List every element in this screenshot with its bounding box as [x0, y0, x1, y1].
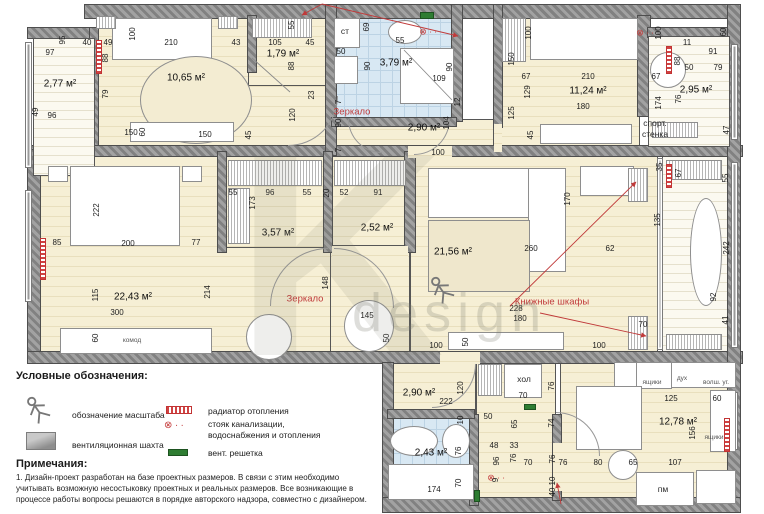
dimension-label: 76: [455, 447, 463, 456]
dimension-label: 210: [164, 39, 177, 47]
wall-segment: [28, 146, 742, 156]
text-label: ящики: [643, 380, 662, 387]
room-area-label: 2,90 м²: [408, 123, 440, 134]
dimension-label: 45: [306, 39, 315, 47]
dimension-label: 23: [308, 91, 316, 100]
dimension-label: 35: [656, 163, 664, 172]
room-area-label: 2,77 м²: [44, 79, 76, 90]
room-area-label: 2,43 м²: [415, 448, 447, 459]
sport-wall-cabinet: [540, 124, 632, 144]
desk: [580, 166, 634, 196]
dimension-label: 11: [683, 39, 691, 47]
notes: Примечания: 1. Дизайн-проект разработан …: [16, 458, 394, 505]
dimension-label: 148: [322, 276, 330, 289]
dimension-label: 90: [364, 62, 372, 71]
dimension-label: 91: [709, 48, 718, 56]
wall-segment: [494, 5, 502, 127]
riser-icon: ⊗ ∙ ∙: [164, 421, 184, 431]
wall-segment: [218, 152, 226, 252]
text-label: Книжные шкафы: [515, 297, 589, 307]
dimension-label: 55: [303, 189, 312, 197]
room-area-label: 3,79 м²: [380, 58, 412, 69]
dimension-label: 7: [335, 148, 343, 152]
nightstand: [48, 166, 68, 182]
room-area-label: 3,57 м²: [262, 228, 294, 239]
bed: [112, 18, 212, 60]
dimension-label: 50: [462, 338, 470, 347]
dimension-label: 180: [576, 103, 589, 111]
shelf: [218, 16, 238, 29]
dimension-label: 65: [629, 459, 638, 467]
dimension-label: 79: [102, 90, 110, 99]
dimension-label: 55: [229, 189, 238, 197]
riser-icon: ⊗ ∙ ∙: [636, 29, 654, 38]
notes-text: 1. Дизайн-проект разработан на базе прое…: [16, 473, 394, 505]
floor-plan-page: 22,43 м²10,65 м²1,79 м²3,79 м²2,90 м²11,…: [0, 0, 764, 514]
dimension-label: 60: [92, 334, 100, 343]
dimension-label: 50: [337, 48, 346, 56]
dimension-label: 60: [713, 395, 722, 403]
vent-grille-icon: [168, 449, 188, 456]
room-area-label: 21,56 м²: [434, 247, 472, 258]
dimension-label: 43: [232, 39, 241, 47]
text-label: Зеркало: [334, 107, 371, 117]
window: [25, 190, 32, 302]
dimension-label: 105: [268, 39, 281, 47]
bookcase: [628, 168, 648, 202]
dimension-label: 76: [559, 459, 568, 467]
dimension-label: 300: [110, 309, 123, 317]
dimension-label: 100: [429, 342, 442, 350]
dimension-label: 95: [59, 36, 67, 45]
sofa-chaise: [528, 168, 566, 272]
dimension-label: 60: [720, 28, 728, 37]
dimension-label: 88: [102, 54, 110, 63]
dimension-label: 100: [592, 342, 605, 350]
dimension-label: 91: [374, 189, 383, 197]
dimension-label: 222: [439, 398, 452, 406]
dimension-label: 174: [427, 486, 440, 494]
dimension-label: 96: [266, 189, 275, 197]
dimension-label: 170: [564, 192, 572, 205]
dimension-label: 150: [508, 52, 516, 65]
text-label: пм: [658, 485, 668, 494]
vent-grille-icon: [524, 404, 536, 410]
text-label: стенка: [642, 130, 668, 139]
dimension-label: 100: [525, 26, 533, 39]
dimension-label: 156: [689, 426, 697, 439]
dimension-label: 107: [668, 459, 681, 467]
room-area-label: 11,24 м²: [569, 86, 606, 97]
dimension-label: 125: [664, 395, 677, 403]
room-opening-5: [494, 124, 502, 152]
dimension-label: 222: [93, 203, 101, 216]
dimension-label: 74: [548, 419, 556, 428]
dimension-label: 40: [83, 39, 92, 47]
toilet: [388, 20, 422, 44]
dimension-label: 65: [511, 420, 519, 429]
dimension-label: 125: [508, 106, 516, 119]
text-label: ящики: [705, 435, 724, 442]
dimension-label: 9: [492, 478, 500, 482]
dimension-label: 70: [519, 392, 528, 400]
window: [657, 158, 663, 350]
vent-shaft-icon: [26, 432, 56, 450]
dimension-label: 80: [594, 459, 603, 467]
dimension-label: 100: [129, 27, 137, 40]
dimension-label: 70: [524, 459, 533, 467]
dimension-label: 150: [198, 131, 211, 139]
dimension-label: 96: [493, 457, 501, 466]
bed: [530, 18, 638, 60]
dimension-label: 76: [549, 455, 557, 464]
dimension-label: 260: [524, 245, 537, 253]
dimension-label: 150: [124, 129, 137, 137]
dimension-label: 96: [48, 112, 57, 120]
radiator-icon: [40, 238, 46, 280]
dimension-label: 76: [510, 454, 518, 463]
dimension-label: 52: [340, 189, 349, 197]
shoe-cabinet: [478, 364, 502, 396]
text-label: хол: [517, 375, 531, 384]
scale-figure-icon: [20, 392, 54, 431]
kitchen-sink: [696, 470, 736, 504]
dimension-label: 40: [549, 488, 557, 497]
dimension-label: 100: [431, 149, 444, 157]
legend-label-shaft: вентиляционная шахта: [72, 440, 164, 451]
radiator-icon: [724, 418, 730, 452]
dimension-label: 85: [53, 239, 62, 247]
dimension-label: 67: [652, 73, 661, 81]
dimension-label: 50: [685, 64, 694, 72]
dimension-label: 41: [722, 316, 730, 325]
legend-label-riser: стояк канализации, водоснабжения и отопл…: [208, 419, 320, 440]
dimension-label: 67: [675, 169, 683, 178]
legend-label-radiator: радиатор отопления: [208, 406, 289, 417]
dimension-label: 50: [484, 413, 493, 421]
dimension-label: 88: [288, 62, 296, 71]
dimension-label: 7: [335, 100, 343, 104]
shelf: [666, 334, 722, 350]
dimension-label: 120: [289, 108, 297, 121]
text-label: Зеркало: [287, 294, 324, 304]
window: [731, 162, 738, 348]
dimension-label: 242: [723, 241, 731, 254]
room-area-label: 2,52 м²: [361, 223, 393, 234]
sofa: [428, 168, 530, 218]
dimension-label: 45: [245, 131, 253, 140]
dimension-label: 88: [674, 57, 682, 66]
legend: Условные обозначения: обозначение масшта…: [16, 370, 388, 458]
room-area-label: 2,90 м²: [403, 388, 435, 399]
dimension-label: 20: [323, 189, 331, 198]
double-bed: [70, 166, 180, 246]
wardrobe-shelving: [228, 160, 322, 186]
text-label: спорт.: [643, 119, 666, 128]
radiator-icon: [666, 164, 672, 188]
dimension-label: 12: [454, 98, 462, 107]
dimension-label: 174: [655, 96, 663, 109]
dimension-label: 47: [723, 126, 731, 135]
window: [25, 42, 32, 168]
dimension-label: 48: [490, 442, 499, 450]
dimension-label: 45: [527, 131, 535, 140]
sink: [334, 56, 358, 84]
wardrobe-shelving: [252, 18, 312, 38]
dimension-label: 33: [510, 442, 519, 450]
armchair: [246, 314, 292, 360]
shower: [400, 48, 454, 104]
dimension-label: 104: [443, 116, 451, 129]
riser-icon: ⊗ ∙ ∙: [419, 28, 437, 37]
dimension-label: 69: [363, 23, 371, 32]
dimension-label: 55: [396, 37, 405, 45]
dimension-label: 55: [722, 174, 730, 183]
text-label: ст: [341, 27, 349, 36]
ironing-board: [690, 198, 722, 306]
scale-figure-icon: [424, 272, 458, 311]
dimension-label: 10: [549, 477, 557, 486]
dimension-label: 10: [457, 416, 465, 425]
nightstand: [182, 166, 202, 182]
dimension-label: 70: [639, 321, 648, 329]
dimension-label: 90: [446, 63, 454, 72]
dimension-label: 92: [710, 293, 718, 302]
dimension-label: 62: [606, 245, 615, 253]
dimension-label: 100: [655, 26, 663, 39]
room-area-label: 2,95 м²: [680, 85, 712, 96]
wall-segment: [324, 152, 332, 252]
text-label: комод: [123, 338, 141, 345]
radiator-icon: [666, 46, 672, 74]
wall-segment: [405, 152, 415, 252]
dimension-label: 120: [457, 381, 465, 394]
text-label: волш. уг.: [703, 380, 729, 387]
dimension-label: 90: [335, 119, 343, 128]
vent-grille-icon: [474, 490, 480, 502]
dimension-label: 180: [513, 315, 526, 323]
shelf: [96, 16, 116, 29]
dimension-label: 135: [654, 213, 662, 226]
room-opening-3: [440, 352, 480, 364]
window: [731, 44, 738, 140]
dimension-label: 109: [432, 75, 445, 83]
room-area-label: 10,65 м²: [167, 73, 205, 84]
dimension-label: 214: [204, 285, 212, 298]
dimension-label: 76: [675, 95, 683, 104]
dimension-label: 115: [92, 289, 100, 302]
dimension-label: 210: [581, 73, 594, 81]
room-balcony-top-left: [33, 38, 95, 176]
dimension-label: 49: [32, 108, 40, 117]
room-area-label: 1,79 м²: [267, 49, 299, 60]
dimension-label: 76: [548, 382, 556, 391]
room-area-label: 22,43 м²: [114, 292, 152, 303]
dimension-label: 145: [360, 312, 373, 320]
dimension-label: 50: [383, 334, 391, 343]
dimension-label: 70: [455, 479, 463, 488]
dimension-label: 173: [249, 196, 257, 209]
dimension-label: 97: [46, 49, 55, 57]
dimension-label: 200: [121, 240, 134, 248]
radiator-icon: [166, 406, 192, 414]
dimension-label: 49: [104, 39, 113, 47]
legend-title: Условные обозначения:: [16, 370, 148, 382]
wardrobe-shelving: [334, 160, 406, 186]
dimension-label: 79: [714, 64, 723, 72]
dimension-label: 77: [192, 239, 201, 247]
legend-label-scale: обозначение масштаба: [72, 410, 165, 421]
notes-title: Примечания:: [16, 458, 394, 470]
dimension-label: 129: [524, 85, 532, 98]
dimension-label: 55: [288, 21, 296, 30]
text-label: дух: [677, 376, 687, 383]
vent-grille-icon: [420, 12, 434, 19]
dimension-label: 60: [139, 128, 147, 137]
dimension-label: 67: [522, 73, 531, 81]
